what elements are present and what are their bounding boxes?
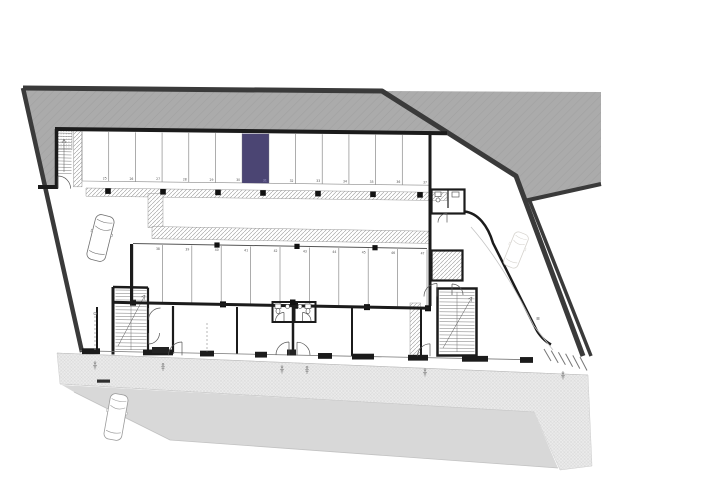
parking-stall-44[interactable] bbox=[309, 247, 338, 299]
parking-stall-41[interactable] bbox=[221, 246, 250, 298]
facade-wall-block bbox=[255, 352, 267, 358]
parking-stall-31[interactable] bbox=[242, 133, 269, 183]
column bbox=[315, 191, 321, 197]
column bbox=[260, 190, 266, 196]
middle-parking-row: 38394041424344454647 bbox=[133, 244, 427, 307]
ghost-car-on-ramp bbox=[501, 230, 531, 270]
parking-stall-35[interactable] bbox=[349, 134, 376, 184]
parked-car bbox=[84, 213, 116, 263]
floor-plan-drawing: 25262728293031323334353637 3839404142434… bbox=[0, 0, 708, 492]
parking-stall-39[interactable] bbox=[162, 245, 191, 297]
streetscape bbox=[57, 353, 592, 470]
parking-stall-32[interactable] bbox=[269, 134, 296, 184]
facade-wall-block bbox=[82, 348, 100, 354]
facade-wall-block bbox=[408, 355, 428, 361]
column bbox=[105, 188, 111, 194]
parking-stall-42[interactable] bbox=[251, 246, 280, 298]
parking-stall-45[interactable] bbox=[339, 248, 368, 300]
parking-stall-46[interactable] bbox=[368, 248, 397, 300]
parking-stall-40[interactable] bbox=[192, 245, 221, 297]
column bbox=[370, 191, 376, 197]
parking-stall-27[interactable] bbox=[135, 132, 162, 181]
facade-wall-block bbox=[520, 357, 533, 363]
parking-stall-34[interactable] bbox=[322, 134, 349, 184]
parking-stall-43[interactable] bbox=[280, 247, 309, 299]
floor-plan-page: 25262728293031323334353637 3839404142434… bbox=[0, 0, 708, 492]
parking-stall-47[interactable] bbox=[398, 249, 427, 301]
column bbox=[294, 244, 299, 249]
annotation-marks bbox=[94, 312, 207, 351]
facade-wall-block bbox=[462, 356, 488, 362]
parking-stall-26[interactable] bbox=[109, 132, 136, 181]
top-parking-row: 25262728293031323334353637 bbox=[82, 132, 429, 185]
parking-stall-36[interactable] bbox=[376, 135, 403, 185]
column bbox=[417, 192, 423, 198]
facade-wall-block bbox=[200, 351, 214, 357]
stair-direction-arrow bbox=[443, 297, 472, 348]
street-name-label bbox=[97, 380, 110, 383]
entry-mat bbox=[152, 347, 169, 353]
parking-stall-25[interactable] bbox=[82, 132, 109, 181]
parking-stall-29[interactable] bbox=[189, 133, 216, 182]
parking-stall-37[interactable] bbox=[402, 135, 429, 185]
aisle-car bbox=[84, 213, 116, 263]
column bbox=[214, 242, 219, 247]
facade-wall-block bbox=[318, 353, 332, 359]
parking-stall-33[interactable] bbox=[296, 134, 323, 184]
column bbox=[372, 245, 377, 250]
ramp-ghost-car bbox=[501, 230, 531, 270]
entry-mat bbox=[287, 350, 296, 356]
parking-stall-28[interactable] bbox=[162, 133, 189, 182]
column bbox=[215, 190, 221, 196]
facade-wall-block bbox=[352, 354, 374, 360]
column bbox=[160, 189, 166, 195]
parking-stall-30[interactable] bbox=[215, 133, 242, 182]
